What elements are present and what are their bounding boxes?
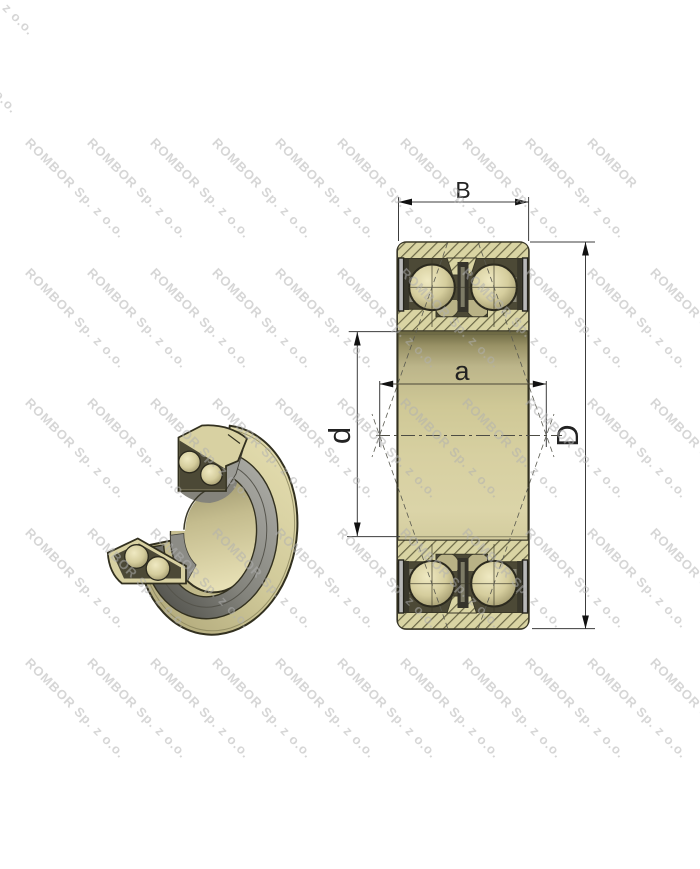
svg-text:a: a: [454, 356, 470, 386]
svg-text:D: D: [550, 424, 585, 446]
svg-text:d: d: [322, 427, 357, 444]
svg-text:B: B: [455, 177, 470, 203]
